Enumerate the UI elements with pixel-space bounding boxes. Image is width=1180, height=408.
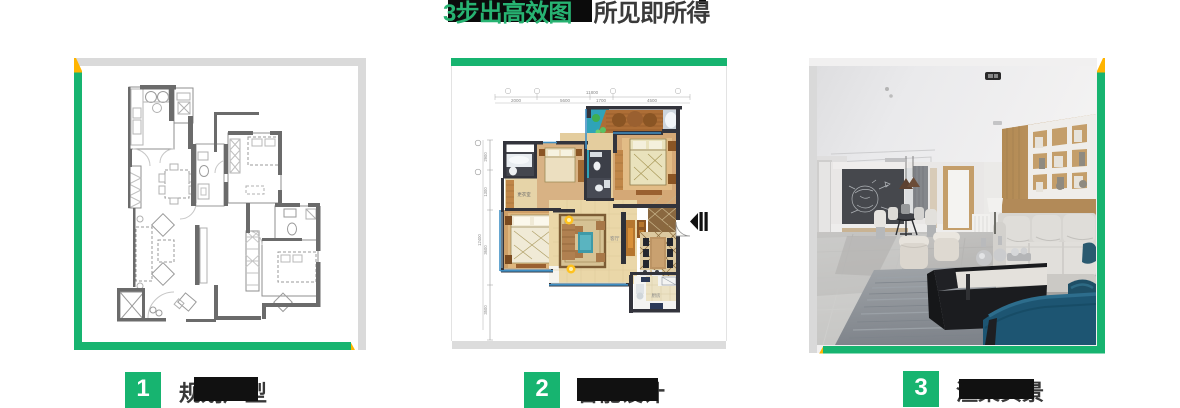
svg-text:1700: 1700 [596,98,607,103]
svg-text:2900: 2900 [483,152,488,162]
svg-text:4500: 4500 [647,98,658,103]
svg-text:厨房: 厨房 [652,292,661,299]
svg-text:12400: 12400 [477,234,482,246]
svg-text:5600: 5600 [560,98,571,103]
svg-text:3600: 3600 [483,245,488,255]
svg-text:11800: 11800 [586,90,599,95]
svg-text:2000: 2000 [511,98,522,103]
svg-text:3500: 3500 [483,305,488,315]
svg-text:更衣室: 更衣室 [517,191,531,198]
svg-text:1300: 1300 [483,187,488,197]
svg-text:客厅: 客厅 [610,235,620,242]
